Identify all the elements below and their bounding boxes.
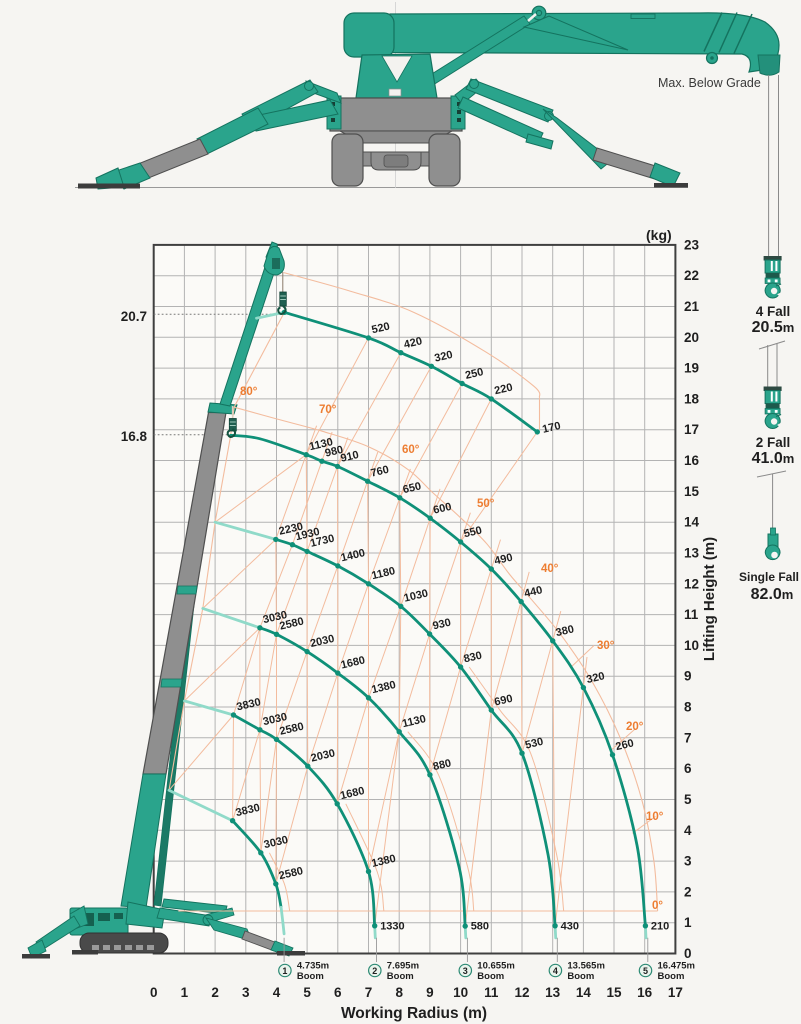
svg-text:6: 6 (334, 985, 342, 1000)
svg-text:8: 8 (395, 985, 403, 1000)
svg-text:82.0m: 82.0m (751, 586, 794, 603)
svg-text:40°: 40° (541, 563, 559, 575)
svg-text:1: 1 (181, 985, 189, 1000)
svg-text:22: 22 (684, 268, 699, 283)
svg-text:Boom: Boom (567, 971, 594, 982)
svg-text:20.7: 20.7 (121, 309, 147, 324)
svg-text:23: 23 (684, 237, 700, 252)
svg-text:20: 20 (684, 330, 699, 345)
svg-text:9: 9 (426, 985, 434, 1000)
svg-text:Single Fall: Single Fall (739, 570, 799, 584)
svg-text:15: 15 (684, 484, 700, 499)
svg-text:7: 7 (365, 985, 373, 1000)
svg-text:4: 4 (273, 985, 281, 1000)
svg-text:20.5m: 20.5m (752, 319, 795, 336)
svg-text:20°: 20° (626, 721, 644, 733)
svg-text:14: 14 (684, 515, 700, 530)
svg-text:5: 5 (643, 966, 648, 976)
svg-text:2 Fall: 2 Fall (756, 435, 791, 450)
svg-text:3: 3 (463, 966, 468, 976)
svg-text:Boom: Boom (387, 971, 414, 982)
svg-text:13.565m: 13.565m (567, 961, 605, 972)
svg-text:Boom: Boom (297, 971, 324, 982)
svg-text:7.695m: 7.695m (387, 961, 419, 972)
svg-text:430: 430 (561, 920, 579, 932)
svg-text:60°: 60° (402, 444, 420, 456)
svg-text:18: 18 (684, 391, 700, 406)
svg-text:10.655m: 10.655m (477, 961, 515, 972)
svg-text:Max. Below Grade: Max. Below Grade (658, 76, 761, 90)
svg-text:3: 3 (242, 985, 250, 1000)
svg-text:Boom: Boom (477, 971, 504, 982)
svg-text:41.0m: 41.0m (752, 450, 795, 467)
svg-text:4: 4 (684, 823, 692, 838)
svg-text:1330: 1330 (380, 920, 404, 932)
svg-text:30°: 30° (597, 640, 615, 652)
svg-text:12: 12 (514, 985, 529, 1000)
svg-text:12: 12 (684, 576, 699, 591)
svg-text:16.475m: 16.475m (658, 961, 696, 972)
svg-text:Boom: Boom (658, 971, 685, 982)
svg-text:17: 17 (684, 422, 699, 437)
svg-text:Working Radius (m): Working Radius (m) (341, 1005, 487, 1022)
svg-text:0: 0 (684, 946, 692, 961)
svg-text:4: 4 (553, 966, 558, 976)
svg-text:1: 1 (684, 915, 692, 930)
svg-text:11: 11 (684, 607, 699, 622)
svg-text:13: 13 (684, 546, 700, 561)
svg-text:4 Fall: 4 Fall (756, 304, 791, 319)
svg-text:11: 11 (484, 985, 499, 1000)
svg-text:210: 210 (651, 920, 669, 932)
svg-text:1: 1 (282, 966, 287, 976)
svg-text:16.8: 16.8 (121, 429, 148, 444)
svg-text:(kg): (kg) (646, 227, 672, 243)
svg-text:13: 13 (545, 985, 561, 1000)
svg-text:5: 5 (303, 985, 311, 1000)
svg-text:2: 2 (684, 884, 692, 899)
svg-text:17: 17 (668, 985, 683, 1000)
svg-text:21: 21 (684, 299, 700, 314)
svg-text:9: 9 (684, 669, 692, 684)
svg-text:8: 8 (684, 700, 692, 715)
svg-text:2: 2 (372, 966, 377, 976)
svg-text:0: 0 (150, 985, 158, 1000)
svg-text:50°: 50° (477, 498, 495, 510)
svg-text:70°: 70° (319, 404, 337, 416)
svg-text:4.735m: 4.735m (297, 961, 329, 972)
svg-text:5: 5 (684, 792, 692, 807)
svg-text:19: 19 (684, 361, 699, 376)
svg-text:16: 16 (684, 453, 700, 468)
svg-text:7: 7 (684, 730, 692, 745)
svg-text:6: 6 (684, 761, 692, 776)
svg-text:3: 3 (684, 854, 692, 869)
svg-text:580: 580 (471, 921, 489, 933)
svg-text:16: 16 (637, 985, 653, 1000)
svg-text:15: 15 (606, 985, 622, 1000)
svg-text:10: 10 (684, 638, 699, 653)
svg-text:10: 10 (453, 985, 468, 1000)
svg-text:80°: 80° (240, 386, 258, 398)
svg-text:Lifting Height (m): Lifting Height (m) (701, 537, 718, 661)
svg-text:14: 14 (576, 985, 592, 1000)
svg-text:2: 2 (211, 985, 219, 1000)
svg-text:10°: 10° (646, 811, 664, 823)
svg-text:0°: 0° (652, 900, 663, 912)
